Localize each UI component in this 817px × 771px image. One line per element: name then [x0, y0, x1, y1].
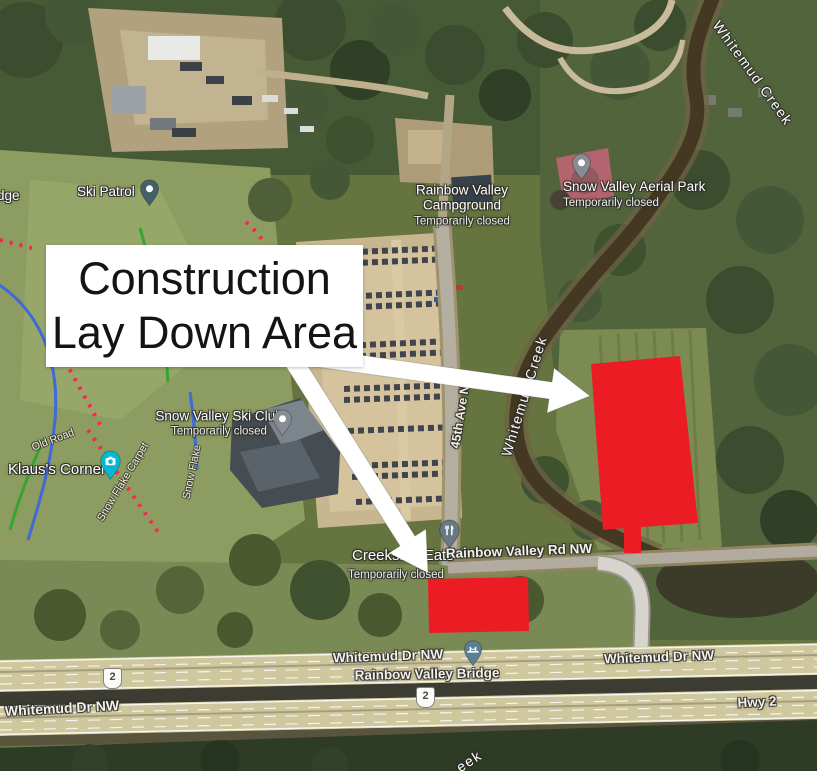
label-ski-club[interactable]: Snow Valley Ski Club Temporarily closed — [155, 410, 282, 439]
label-aerial-park[interactable]: Snow Valley Aerial Park Temporarily clos… — [563, 179, 705, 211]
route-shield-icon: 2 — [103, 668, 122, 689]
map-canvas[interactable]: dge Ski Patrol Rainbow Valley Campground… — [0, 0, 817, 771]
aerial-park-pin-icon[interactable] — [571, 153, 592, 181]
construction-label-line1: Construction — [78, 252, 331, 306]
label-campground[interactable]: Rainbow Valley Campground Temporarily cl… — [414, 183, 510, 230]
label-rainbow-valley-bridge: Rainbow Valley Bridge — [354, 665, 499, 683]
label-ridge-partial: dge — [0, 188, 20, 203]
farm-yard — [88, 8, 314, 152]
construction-label-box: Construction Lay Down Area — [46, 245, 363, 367]
label-ski-patrol[interactable]: Ski Patrol — [77, 184, 135, 199]
bridge-pin-icon[interactable] — [462, 640, 484, 667]
route-shield-icon: 2 — [416, 687, 435, 708]
construction-label-line2: Lay Down Area — [52, 306, 357, 360]
ski-club-pin-icon[interactable] — [272, 409, 293, 437]
camera-pin-icon[interactable] — [99, 450, 122, 481]
label-creekside-eats-status: Temporarily closed — [348, 569, 444, 581]
label-klaus-corner[interactable]: Klaus's Corner — [8, 461, 106, 478]
ski-patrol-pin-icon[interactable] — [139, 179, 160, 207]
restaurant-pin-icon[interactable] — [438, 519, 461, 550]
label-hwy2: Hwy 2 — [737, 693, 777, 710]
